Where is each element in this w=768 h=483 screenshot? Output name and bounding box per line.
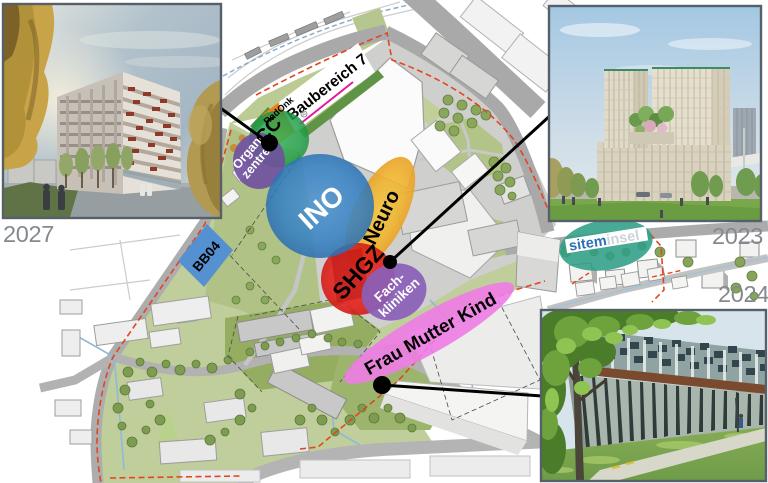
svg-text:2024: 2024 bbox=[718, 281, 768, 307]
svg-text:2023: 2023 bbox=[712, 223, 763, 249]
svg-text:2027: 2027 bbox=[3, 221, 54, 247]
